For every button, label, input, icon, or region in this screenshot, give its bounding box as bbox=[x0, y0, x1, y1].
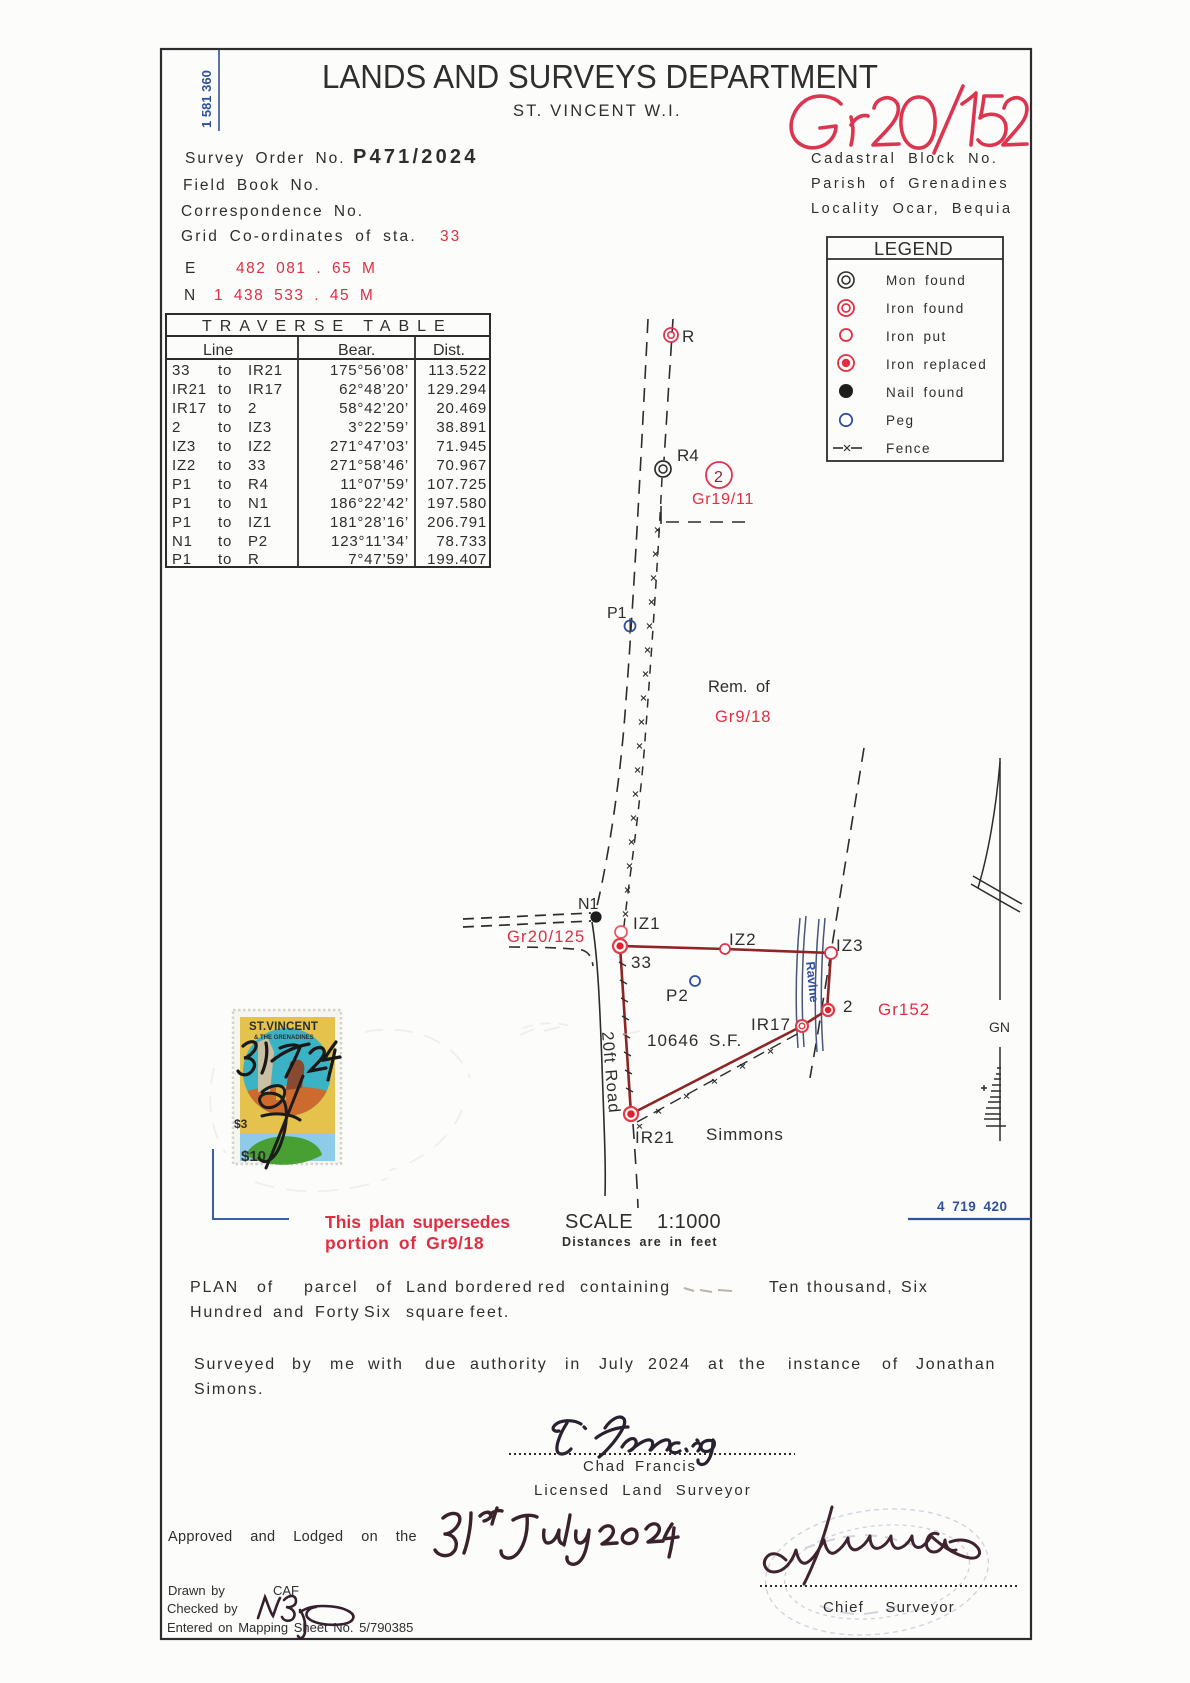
svg-text:IR21: IR21 bbox=[635, 1128, 675, 1147]
svg-text:Parish of Grenadines: Parish of Grenadines bbox=[811, 176, 1009, 192]
svg-text:Grid Co-ordinates of sta.: Grid Co-ordinates of sta. bbox=[181, 228, 417, 245]
svg-text:LANDS AND SURVEYS DEPARTMENT: LANDS AND SURVEYS DEPARTMENT bbox=[322, 58, 878, 95]
svg-text:& THE GRENADINES: & THE GRENADINES bbox=[254, 1035, 314, 1041]
svg-text:11°07’59’107.725: 11°07’59’107.725 bbox=[340, 476, 487, 493]
svg-text:IR17: IR17 bbox=[751, 1015, 791, 1034]
svg-text:Chad Francis: Chad Francis bbox=[583, 1458, 697, 1475]
svg-text:181°28’16’206.791: 181°28’16’206.791 bbox=[330, 514, 487, 531]
svg-text:P471/2024: P471/2024 bbox=[353, 146, 479, 168]
svg-text:4 719 420: 4 719 420 bbox=[937, 1199, 1008, 1214]
svg-text:Iron put: Iron put bbox=[886, 329, 947, 344]
svg-text:PLANofparcelofLandborderedredc: PLANofparcelofLandborderedredcontainingT… bbox=[190, 1279, 929, 1296]
svg-text:Gr9/18: Gr9/18 bbox=[715, 708, 771, 726]
svg-text:N1: N1 bbox=[578, 896, 599, 913]
svg-text:N: N bbox=[184, 287, 195, 304]
svg-text:Bear.: Bear. bbox=[338, 342, 375, 359]
svg-text:E: E bbox=[185, 260, 195, 277]
svg-text:Nail found: Nail found bbox=[886, 385, 965, 400]
svg-text:IZ2to33: IZ2to33 bbox=[172, 457, 266, 474]
svg-text:ST.VINCENT: ST.VINCENT bbox=[249, 1021, 318, 1033]
svg-text:Cadastral Block No.: Cadastral Block No. bbox=[811, 151, 999, 167]
svg-text:SCALE1:1000: SCALE1:1000 bbox=[565, 1211, 721, 1233]
svg-text:Line: Line bbox=[203, 342, 233, 359]
svg-text:2: 2 bbox=[843, 997, 853, 1016]
svg-text:Fence: Fence bbox=[886, 441, 931, 456]
svg-text:P1toN1: P1toN1 bbox=[172, 495, 269, 512]
svg-text:Distances are in feet: Distances are in feet bbox=[562, 1235, 718, 1249]
svg-text:Locality Ocar, Bequia: Locality Ocar, Bequia bbox=[811, 201, 1013, 217]
svg-text:R4: R4 bbox=[677, 446, 699, 465]
svg-text:3°22’59’38.891: 3°22’59’38.891 bbox=[348, 419, 487, 436]
svg-text:Rem. of: Rem. of bbox=[708, 678, 770, 696]
svg-text:Gr19/11: Gr19/11 bbox=[692, 491, 754, 508]
svg-text:P1toR: P1toR bbox=[172, 551, 260, 568]
svg-text:20ft Road: 20ft Road bbox=[598, 1031, 623, 1115]
svg-text:IZ3: IZ3 bbox=[836, 936, 864, 955]
svg-text:portion of Gr9/18: portion of Gr9/18 bbox=[325, 1233, 484, 1253]
svg-text:N1toP2: N1toP2 bbox=[172, 533, 268, 550]
svg-text:482 081 . 65 M: 482 081 . 65 M bbox=[236, 260, 376, 277]
svg-text:R: R bbox=[682, 327, 694, 346]
svg-text:IZ1: IZ1 bbox=[633, 914, 661, 933]
svg-text:HundredandFortySixsquarefeet.: HundredandFortySixsquarefeet. bbox=[190, 1304, 510, 1321]
svg-text:ST. VINCENT W.I.: ST. VINCENT W.I. bbox=[513, 102, 682, 120]
svg-text:Checked by: Checked by bbox=[167, 1601, 238, 1616]
svg-text:Gr152: Gr152 bbox=[878, 1000, 930, 1019]
svg-text:This plan supersedes: This plan supersedes bbox=[325, 1212, 510, 1232]
svg-text:IR17to2: IR17to2 bbox=[172, 400, 257, 417]
svg-text:Entered on Mapping Sheet No. 5: Entered on Mapping Sheet No. 5/790385 bbox=[167, 1620, 413, 1635]
svg-text:Simons.: Simons. bbox=[194, 1381, 264, 1398]
svg-text:Licensed Land Surveyor: Licensed Land Surveyor bbox=[534, 1482, 752, 1499]
svg-text:33toIR21: 33toIR21 bbox=[172, 362, 283, 379]
svg-text:7°47’59’199.407: 7°47’59’199.407 bbox=[348, 551, 487, 568]
svg-text:271°47’03’71.945: 271°47’03’71.945 bbox=[330, 438, 487, 455]
svg-text:Mon found: Mon found bbox=[886, 273, 966, 288]
svg-text:Dist.: Dist. bbox=[433, 342, 465, 359]
svg-text:Chief Surveyor: Chief Surveyor bbox=[823, 1599, 955, 1616]
svg-text:Ravine: Ravine bbox=[803, 961, 821, 1003]
svg-text:IZ3toIZ2: IZ3toIZ2 bbox=[172, 438, 272, 455]
svg-text:TRAVERSE TABLE: TRAVERSE TABLE bbox=[202, 318, 453, 335]
svg-text:175°56’08’113.522: 175°56’08’113.522 bbox=[330, 362, 487, 379]
svg-text:Drawn by: Drawn by bbox=[168, 1583, 225, 1598]
svg-text:Simmons: Simmons bbox=[706, 1125, 784, 1144]
svg-text:62°48’20’129.294: 62°48’20’129.294 bbox=[339, 381, 487, 398]
svg-text:33: 33 bbox=[440, 228, 461, 245]
svg-text:1 581 360: 1 581 360 bbox=[199, 70, 214, 128]
svg-text:186°22’42’197.580: 186°22’42’197.580 bbox=[330, 495, 487, 512]
svg-text:$3: $3 bbox=[234, 1117, 248, 1131]
svg-text:Gr20/125: Gr20/125 bbox=[507, 928, 585, 946]
svg-text:P1toIZ1: P1toIZ1 bbox=[172, 514, 272, 531]
svg-text:Iron replaced: Iron replaced bbox=[886, 357, 987, 372]
svg-text:P2: P2 bbox=[666, 986, 689, 1005]
svg-text:Survey Order No.: Survey Order No. bbox=[185, 150, 346, 167]
svg-text:33: 33 bbox=[631, 953, 652, 972]
svg-text:P1toR4: P1toR4 bbox=[172, 476, 269, 493]
svg-text:Field Book No.: Field Book No. bbox=[183, 177, 321, 194]
svg-text:IR21toIR17: IR21toIR17 bbox=[172, 381, 283, 398]
svg-text:Iron found: Iron found bbox=[886, 301, 965, 316]
svg-text:GN: GN bbox=[989, 1019, 1010, 1035]
svg-text:1 438 533 . 45 M: 1 438 533 . 45 M bbox=[214, 287, 374, 304]
svg-text:271°58’46’70.967: 271°58’46’70.967 bbox=[330, 457, 487, 474]
svg-text:IZ2: IZ2 bbox=[729, 930, 757, 949]
svg-text:58°42’20’20.469: 58°42’20’20.469 bbox=[339, 400, 487, 417]
svg-text:LEGEND: LEGEND bbox=[874, 238, 953, 259]
svg-text:P1: P1 bbox=[607, 605, 627, 622]
svg-text:2toIZ3: 2toIZ3 bbox=[172, 419, 272, 436]
svg-text:Approved and Lodged on the: Approved and Lodged on the bbox=[168, 1529, 417, 1545]
svg-text:Peg: Peg bbox=[886, 413, 915, 428]
svg-text:2: 2 bbox=[714, 469, 723, 486]
svg-text:Surveyedbymewithdueauthorityin: SurveyedbymewithdueauthorityinJuly2024at… bbox=[194, 1356, 996, 1373]
svg-text:Correspondence No.: Correspondence No. bbox=[181, 203, 364, 220]
svg-text:123°11’34’78.733: 123°11’34’78.733 bbox=[331, 533, 487, 550]
svg-text:10646 S.F.: 10646 S.F. bbox=[647, 1031, 742, 1050]
